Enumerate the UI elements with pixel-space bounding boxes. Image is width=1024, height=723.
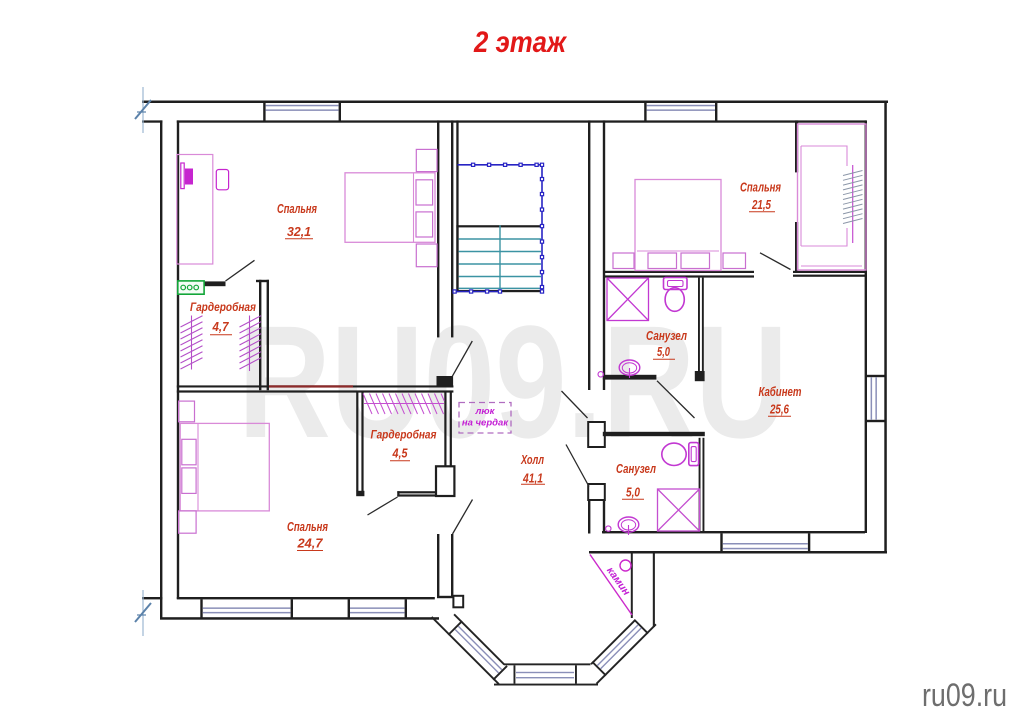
svg-text:люк: люк — [475, 406, 496, 417]
svg-text:4,7: 4,7 — [212, 320, 230, 334]
svg-text:Спальня: Спальня — [277, 202, 317, 216]
svg-text:32,1: 32,1 — [287, 225, 311, 239]
svg-text:5,0: 5,0 — [626, 486, 640, 500]
svg-text:21,5: 21,5 — [751, 198, 772, 212]
svg-text:на чердак: на чердак — [462, 418, 509, 429]
svg-text:Холл: Холл — [520, 453, 544, 467]
svg-text:5,0: 5,0 — [657, 345, 670, 359]
svg-text:ru09.ru: ru09.ru — [922, 677, 1007, 713]
svg-text:RU09.RU: RU09.RU — [238, 292, 788, 471]
svg-text:Санузел: Санузел — [616, 462, 656, 476]
svg-text:Гардеробная: Гардеробная — [190, 300, 256, 314]
svg-text:Спальня: Спальня — [740, 180, 781, 194]
svg-text:25,6: 25,6 — [769, 403, 790, 417]
svg-text:Спальня: Спальня — [287, 520, 328, 534]
svg-text:Санузел: Санузел — [646, 329, 687, 343]
svg-text:Кабинет: Кабинет — [759, 385, 802, 399]
svg-text:2 этаж: 2 этаж — [473, 26, 567, 59]
svg-text:4,5: 4,5 — [392, 447, 409, 461]
svg-text:Гардеробная: Гардеробная — [371, 428, 437, 442]
svg-text:24,7: 24,7 — [296, 537, 323, 551]
svg-text:41,1: 41,1 — [522, 472, 543, 486]
